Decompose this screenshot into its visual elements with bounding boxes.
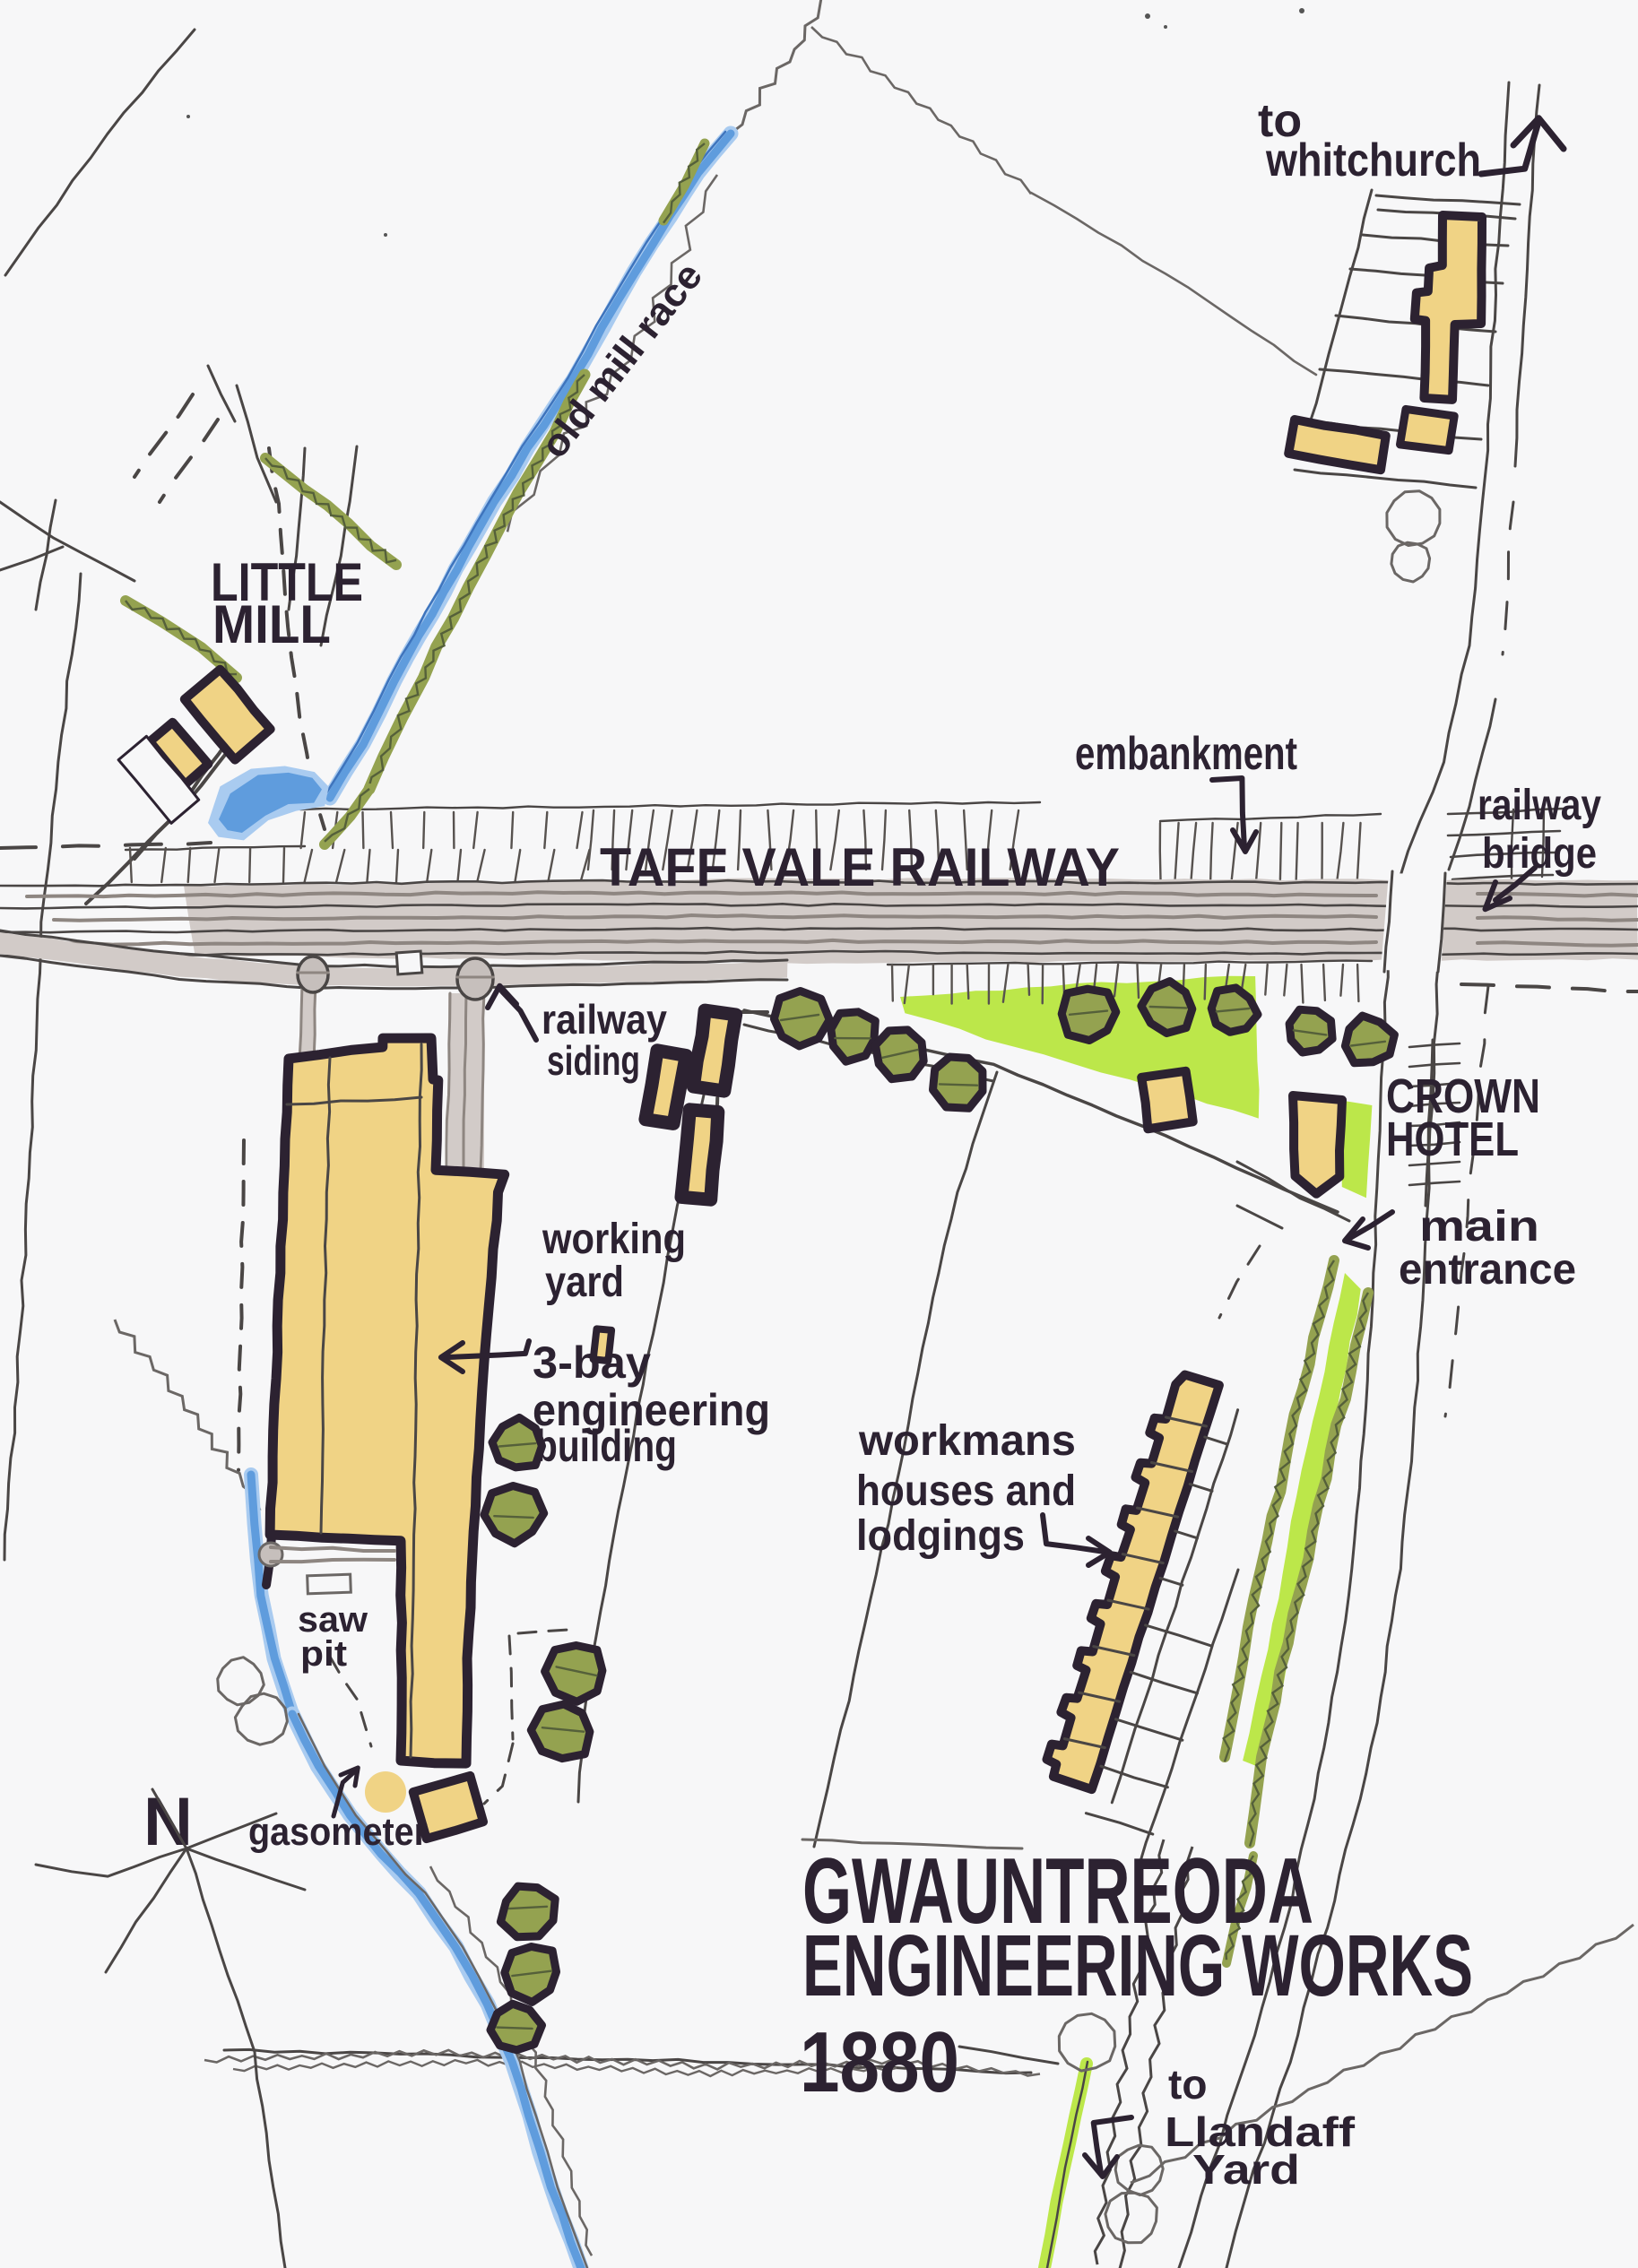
svg-text:gasometer: gasometer bbox=[248, 1810, 428, 1854]
svg-text:TAFF VALE RAILWAY: TAFF VALE RAILWAY bbox=[600, 837, 1120, 897]
svg-text:pit: pit bbox=[300, 1634, 347, 1674]
svg-text:railway: railway bbox=[542, 996, 667, 1043]
svg-text:ENGINEERING WORKS: ENGINEERING WORKS bbox=[802, 1917, 1473, 2014]
svg-text:1880: 1880 bbox=[800, 2014, 959, 2110]
svg-text:lodgings: lodgings bbox=[856, 1512, 1025, 1560]
svg-text:houses and: houses and bbox=[856, 1467, 1076, 1515]
svg-text:entrance: entrance bbox=[1399, 1246, 1576, 1294]
svg-text:HOTEL: HOTEL bbox=[1386, 1112, 1519, 1166]
svg-text:Yard: Yard bbox=[1192, 2146, 1300, 2193]
svg-text:to: to bbox=[1168, 2061, 1207, 2108]
svg-text:workmans: workmans bbox=[858, 1417, 1076, 1465]
svg-text:MILL: MILL bbox=[212, 594, 331, 654]
svg-text:building: building bbox=[535, 1421, 677, 1471]
svg-text:embankment: embankment bbox=[1075, 728, 1297, 780]
svg-text:railway: railway bbox=[1478, 782, 1601, 829]
svg-text:3-bay: 3-bay bbox=[533, 1337, 651, 1388]
svg-text:siding: siding bbox=[547, 1037, 640, 1084]
svg-text:working: working bbox=[542, 1216, 686, 1263]
svg-text:yard: yard bbox=[545, 1259, 624, 1306]
svg-text:bridge: bridge bbox=[1482, 830, 1597, 878]
svg-text:whitchurch: whitchurch bbox=[1265, 134, 1481, 186]
svg-text:main: main bbox=[1419, 1203, 1539, 1251]
